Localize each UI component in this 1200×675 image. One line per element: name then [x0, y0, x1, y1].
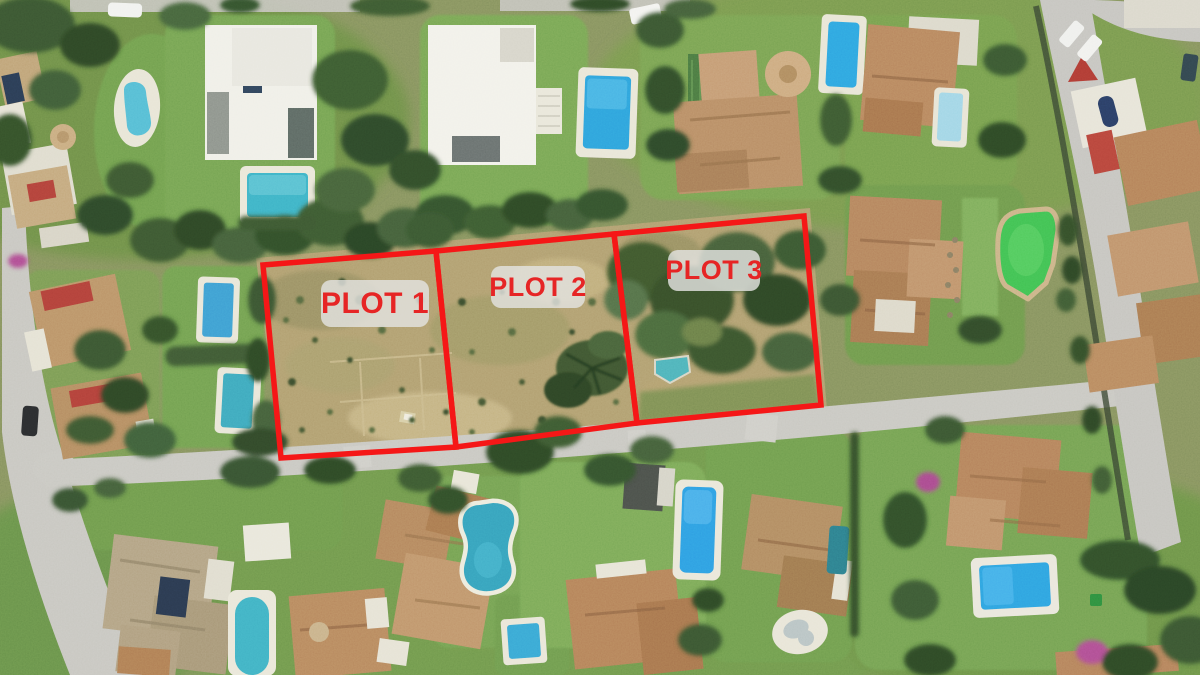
- annotated-aerial-photo: PLOT 1 PLOT 2 PLOT 3: [0, 0, 1200, 675]
- plot-1-label: PLOT 1: [321, 280, 429, 327]
- plot-2-label-text: PLOT 2: [489, 272, 587, 303]
- plot-2-label: PLOT 2: [491, 266, 585, 308]
- plot-3-label: PLOT 3: [668, 250, 760, 291]
- plot-3-label-text: PLOT 3: [665, 255, 763, 286]
- plot-1-label-text: PLOT 1: [321, 287, 429, 321]
- image-grain: [0, 0, 1200, 675]
- satellite-image: [0, 0, 1200, 675]
